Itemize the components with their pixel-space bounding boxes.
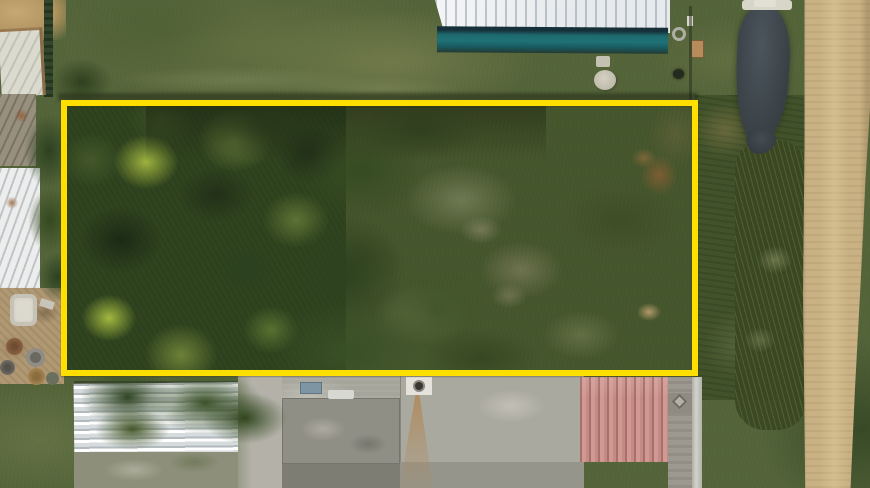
- teal-roof-edge: [437, 26, 668, 54]
- barrel: [28, 368, 45, 385]
- tree-overhang: [95, 408, 170, 450]
- barrel: [6, 338, 23, 355]
- white-debris: [328, 390, 354, 399]
- septic-lid: [594, 70, 616, 90]
- concrete-roof-complex: [238, 376, 584, 488]
- ground-hole: [673, 69, 684, 79]
- barrel: [46, 372, 59, 385]
- property-boundary-rectangle: [61, 100, 698, 376]
- concrete-section-center: [282, 398, 400, 464]
- white-edge-strip: [692, 377, 702, 488]
- blue-tarp-scrap: [300, 382, 322, 394]
- tree-overhang: [202, 392, 287, 444]
- fence-line: [689, 6, 692, 102]
- pink-metal-roof: [580, 377, 668, 462]
- concrete-section-center-bottom: [282, 464, 402, 488]
- tall-grass-strip: [735, 140, 807, 430]
- barrel: [0, 360, 15, 375]
- barrel: [26, 348, 45, 367]
- small-pad: [596, 56, 610, 67]
- small-wooden-box: [691, 40, 704, 58]
- shed-tarp: [0, 27, 46, 97]
- ground-ring: [672, 27, 686, 41]
- vent-chimney: [413, 380, 425, 392]
- aerial-photo: [0, 0, 870, 488]
- old-tub: [10, 294, 37, 326]
- concrete-pad-small: [754, 0, 776, 7]
- mossy-ground: [74, 452, 242, 488]
